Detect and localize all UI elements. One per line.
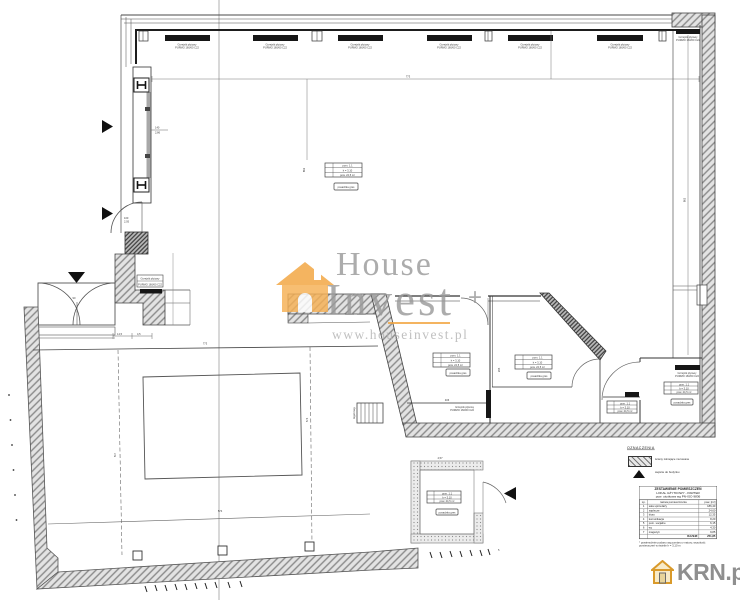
survey-ticks [430, 549, 490, 558]
wall-hatch-swatch [628, 456, 652, 467]
svg-text:h = 3,10: h = 3,10 [533, 360, 543, 364]
svg-text:PURMO 160/60 C22: PURMO 160/60 C22 [676, 38, 700, 42]
svg-text:773: 773 [203, 342, 208, 346]
svg-text:PURMO 160/60 C22: PURMO 160/60 C22 [518, 45, 542, 49]
svg-text:4,57: 4,57 [437, 456, 443, 460]
survey-ticks [145, 581, 242, 592]
svg-text:PURMO 160/60 C22: PURMO 160/60 C22 [675, 374, 699, 378]
legend-entry-label: wejście do budynku [655, 471, 679, 474]
svg-text:pom. 1.1: pom. 1.1 [620, 401, 631, 405]
svg-text:574: 574 [218, 509, 223, 513]
room-info-table: pom. 1.1 h = 3,10 pow. 24,5 m² [515, 355, 552, 369]
svg-text:posadzka gres: posadzka gres [439, 510, 457, 514]
svg-text:posadzka gres: posadzka gres [674, 400, 692, 404]
svg-text:Grzejnik płytowy: Grzejnik płytowy [141, 277, 161, 281]
floor-plan-svg: Grzejnik płytowy PURMO 160/60 C22 Grzejn… [0, 0, 740, 600]
svg-text:PURMO 160/60 C22: PURMO 160/60 C22 [450, 408, 474, 412]
dim-window: 140 [155, 126, 160, 130]
svg-text:14,5: 14,5 [117, 332, 123, 336]
room-name-plate: posadzka gres [334, 183, 358, 190]
room-info-table: pom. 1.1 h = 3,10 pow. 24,5 m² [664, 382, 698, 394]
niche-radiator: Grzejnik płytowy PURMO 160/60 C22 [137, 275, 163, 294]
main-entrance [31, 283, 115, 338]
svg-text:2,86: 2,86 [155, 130, 161, 134]
svg-text:295: 295 [497, 367, 501, 372]
svg-text:PURMO 160/60 C22: PURMO 160/60 C22 [263, 45, 287, 49]
room-info-table: pom. 1.1 h = 3,10 pow. 24,5 m² [433, 353, 470, 367]
legend: OZNACZENIA ściany istniejące murowane we… [627, 446, 739, 486]
dim-shaft: 862 [683, 197, 687, 202]
arrow-right-icon [102, 207, 113, 220]
room-name-plate: posadzka gres [446, 369, 470, 376]
room-info-table: pom. 1.1 h = 3,10 pow. 24,5 m² [607, 401, 637, 413]
svg-text:pow. 24,5 m²: pow. 24,5 m² [618, 409, 633, 413]
svg-text:posadzka gres: posadzka gres [450, 371, 468, 375]
top-radiators: Grzejnik płytowy PURMO 160/60 C22 Grzejn… [139, 29, 700, 49]
svg-text:406: 406 [445, 398, 450, 402]
svg-text:PURMO 160/60 C22: PURMO 160/60 C22 [175, 45, 199, 49]
hall-dimensions [152, 31, 699, 355]
svg-text:pow. 24,5 m²: pow. 24,5 m² [677, 390, 692, 394]
svg-text:posadzka gres: posadzka gres [338, 185, 356, 189]
krn-watermark: KRN.pl [651, 559, 740, 586]
svg-text:pom. 1.1: pom. 1.1 [442, 491, 453, 495]
big-room-left-wall [24, 307, 58, 589]
svg-text:h = 3,10: h = 3,10 [451, 358, 461, 362]
svg-text:574: 574 [305, 417, 309, 422]
bottom-wall [403, 423, 715, 437]
krn-label: KRN.pl [677, 559, 740, 586]
room-info-table: pom. 1.1 h = 3,10 pow. 24,5 m² [325, 163, 362, 177]
svg-text:pom. 1.1: pom. 1.1 [679, 382, 690, 386]
arrow-right-icon [102, 120, 113, 133]
big-room-bottom-wall [37, 548, 418, 589]
arrow-down-icon [68, 272, 85, 283]
inner-zone-outline [143, 373, 302, 479]
dim-door: 100 [124, 216, 129, 220]
storage-rack [357, 403, 383, 423]
dim-top: 773 [406, 75, 411, 79]
svg-text:pom. 1.1: pom. 1.1 [450, 354, 461, 358]
svg-text:h = 3,10: h = 3,10 [679, 386, 689, 390]
floor-plan-image: Grzejnik płytowy PURMO 160/60 C22 Grzejn… [0, 0, 740, 600]
svg-text:posadzka gres: posadzka gres [531, 374, 549, 378]
big-room: regał mag. [8, 307, 418, 592]
table-total-row: RAZEM: 251,85 [640, 534, 717, 538]
schedule-table: Lp. nazwa pomieszczenia pow. [m²] 1sala … [639, 500, 716, 539]
svg-text:h = 3,10: h = 3,10 [620, 405, 630, 409]
room-name-plate: posadzka gres [527, 372, 551, 379]
wall-dots [8, 394, 17, 521]
svg-text:pow. 24,5 m²: pow. 24,5 m² [340, 173, 355, 177]
room2-diagonal-wall [540, 293, 606, 360]
krn-house-icon [651, 560, 674, 585]
svg-text:pow. 24,5 m²: pow. 24,5 m² [530, 365, 545, 369]
room-schedule: ZESTAWIENIE POMIESZCZEŃ LOKAL UŻYTKOWY -… [639, 486, 717, 548]
svg-text:pom. 1.1: pom. 1.1 [342, 164, 353, 168]
svg-text:h = 3,10: h = 3,10 [442, 495, 452, 499]
rack-label: regał mag. [352, 407, 356, 420]
svg-text:PURMO 160/60 C22: PURMO 160/60 C22 [437, 45, 461, 49]
room-name-plate: posadzka gres [436, 509, 458, 515]
room-name-plate: posadzka gres [671, 399, 693, 405]
room-info-table: pom. 1.1 h = 3,10 pow. 24,5 m² [427, 491, 461, 503]
legend-wall-label: ściany istniejące murowane [655, 458, 689, 461]
dim-hall: 862 [302, 167, 306, 172]
schedule-note: * powierzchnie podano wg pomiaru z natur… [639, 541, 717, 548]
svg-text:PURMO 160/60 C22: PURMO 160/60 C22 [348, 45, 372, 49]
svg-text:pow. 24,5 m²: pow. 24,5 m² [440, 499, 455, 503]
entry-triangle-icon [633, 470, 645, 478]
arrow-left-icon [504, 487, 516, 500]
svg-text:h = 3,10: h = 3,10 [343, 168, 353, 172]
svg-text:4,5: 4,5 [137, 332, 141, 336]
schedule-header: ZESTAWIENIE POMIESZCZEŃ LOKAL UŻYTKOWY -… [639, 486, 716, 499]
svg-text:5: 5 [498, 548, 500, 552]
left-window-strip: 140 2,86 [133, 67, 168, 203]
dim-entry: 90 [73, 296, 76, 300]
svg-text:2,05: 2,05 [124, 220, 130, 224]
svg-text:PURMO 160/60 C22: PURMO 160/60 C22 [608, 45, 632, 49]
svg-text:pow. 24,5 m²: pow. 24,5 m² [448, 363, 463, 367]
legend-title: OZNACZENIA [627, 446, 655, 450]
svg-text:pom. 1.1: pom. 1.1 [532, 356, 543, 360]
svg-text:PURMO 160/60 C22: PURMO 160/60 C22 [138, 283, 162, 287]
svg-text:517: 517 [113, 452, 117, 457]
